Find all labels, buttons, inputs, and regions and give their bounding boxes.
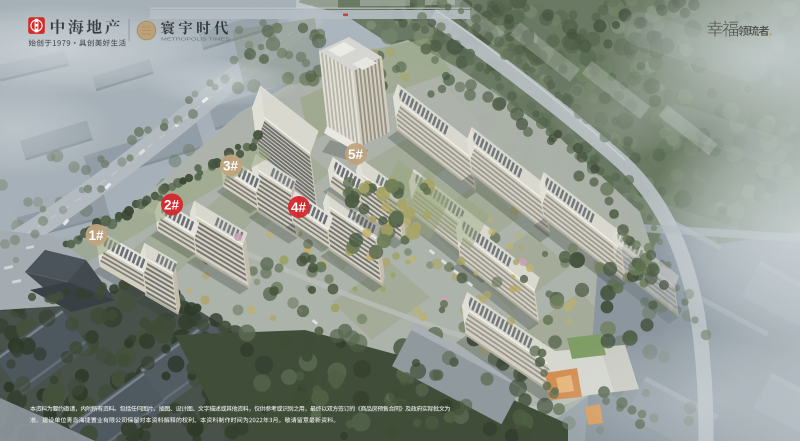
svg-text:2#: 2# — [164, 197, 180, 212]
svg-text:1#: 1# — [88, 228, 104, 243]
svg-text:4#: 4# — [291, 200, 307, 215]
svg-text:METROPOLIS TIMES: METROPOLIS TIMES — [161, 36, 230, 41]
svg-text:5#: 5# — [348, 147, 364, 162]
svg-text:3#: 3# — [223, 158, 239, 173]
